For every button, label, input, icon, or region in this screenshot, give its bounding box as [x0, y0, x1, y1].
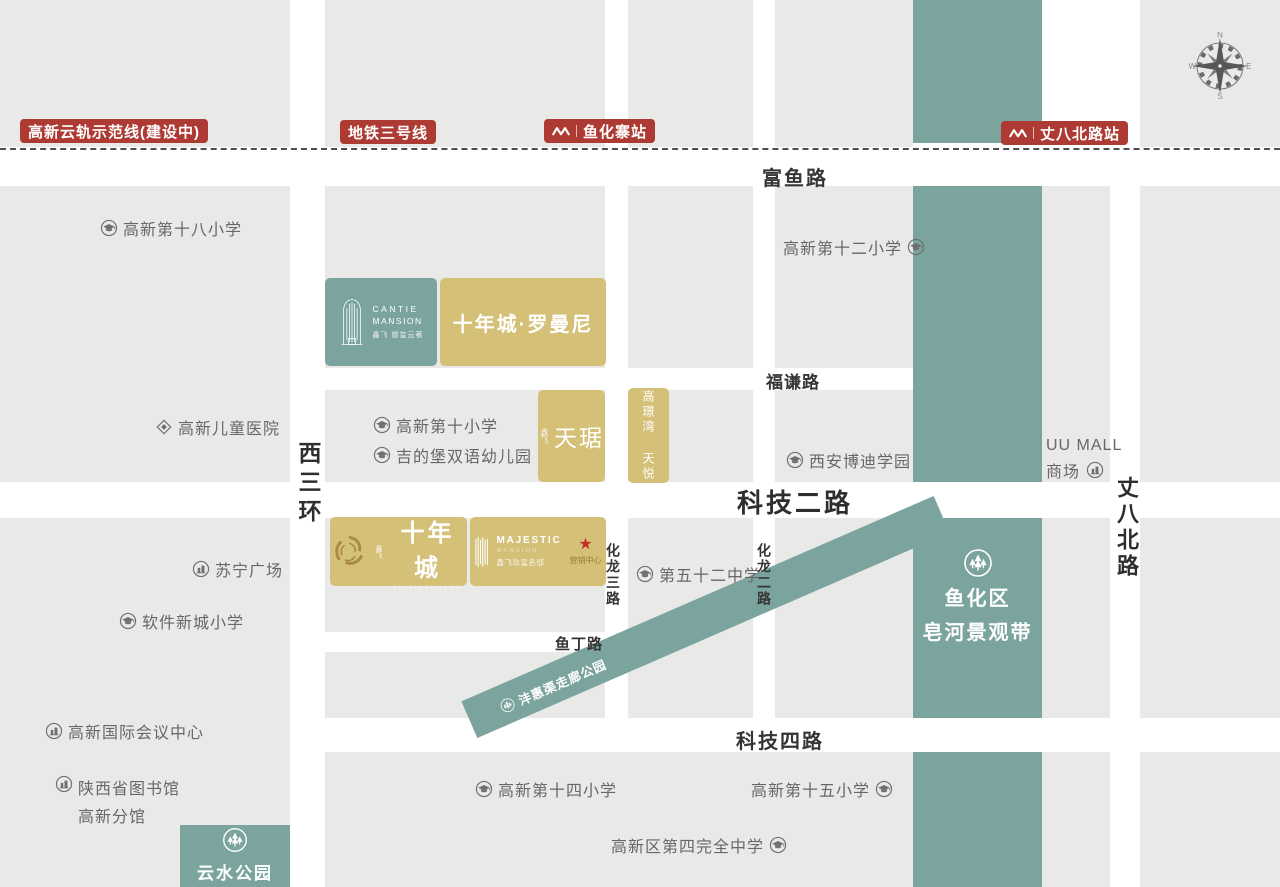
city-block — [1140, 752, 1280, 887]
landmark-library: 陕西省图书馆 高新分馆 — [55, 775, 180, 827]
school-icon — [769, 836, 787, 854]
landmark-gaoxin10: 高新第十小学 — [373, 413, 498, 437]
river-landscape-band — [913, 186, 1042, 482]
project-label: 高璟湾 天悦 — [640, 390, 657, 482]
project-romanni: 十年城·罗曼尼 — [440, 278, 606, 366]
landmark-ruanjian: 软件新城小学 — [119, 609, 244, 633]
metro-logo-icon — [552, 125, 577, 137]
badge-station-zhangbabei: 丈八北路站 — [1001, 121, 1128, 145]
project-prefix: 鑫飞 — [373, 545, 383, 559]
sales-center-label: 营销中心 — [569, 555, 601, 566]
landmark-gaoxin12: 高新第十二小学 — [783, 235, 925, 259]
city-block — [1140, 518, 1280, 718]
landmark-label: 高新国际会议中心 — [68, 719, 204, 743]
park-icon — [222, 827, 248, 853]
badge-label: 鱼化寨站 — [583, 121, 647, 142]
project-label: 鑫飞 御玺云著 — [373, 330, 424, 340]
road-label-fuyu: 富鱼路 — [762, 162, 828, 191]
school-icon — [119, 612, 137, 630]
sales-center-star-icon: ★ — [569, 537, 601, 553]
road-label-yuding: 鱼丁路 — [555, 633, 603, 654]
project-label: MAJESTIC — [497, 535, 562, 546]
arch-building-icon — [339, 297, 365, 347]
mall-icon — [1086, 461, 1104, 479]
landmark-label: 高新第十二小学 — [783, 235, 902, 259]
vertical-lines-icon — [475, 535, 489, 569]
school-icon — [100, 219, 118, 237]
project-cantie-mansion: CANTIE MANSION 鑫飞 御玺云著 — [325, 278, 437, 366]
project-label: 十年城·罗曼尼 — [453, 308, 594, 337]
landmark-label: 高新第十小学 — [396, 413, 498, 437]
project-sublabel: MANSION — [497, 548, 562, 554]
building-icon — [45, 722, 63, 740]
badge-metro-line3: 地铁三号线 — [340, 120, 436, 144]
project-tianyue: 高璟湾 天悦 — [628, 388, 669, 483]
landmark-label: 高新第十四小学 — [498, 777, 617, 801]
project-label: MANSION — [373, 316, 424, 326]
building-icon — [55, 775, 73, 793]
school-icon — [636, 565, 654, 583]
road-label-zhangbabei: 丈八北路 — [1110, 476, 1142, 580]
landmark-ertong-hospital: 高新儿童医院 — [155, 415, 280, 439]
park-icon — [497, 695, 517, 715]
project-label: 天琚 — [554, 419, 604, 453]
project-label: 鑫飞玖玺名邸 — [497, 557, 562, 568]
school-icon — [373, 446, 391, 464]
landmark-label: 商场 — [1046, 458, 1080, 482]
school-icon — [786, 451, 804, 469]
road-label-fuqian: 福谦路 — [766, 368, 820, 393]
landmark-label: 高新分馆 — [78, 803, 180, 827]
landmark-label: 第五十二中学 — [659, 562, 761, 586]
compass-s: S — [1217, 92, 1222, 100]
landmark-label: 苏宁广场 — [215, 557, 283, 581]
compass-w: W — [1189, 62, 1197, 71]
city-block — [325, 752, 913, 887]
badge-label: 高新云轨示范线(建设中) — [28, 121, 200, 142]
landmark-gaoxin18: 高新第十八小学 — [100, 216, 242, 240]
school-icon — [373, 416, 391, 434]
city-block — [628, 186, 753, 368]
project-tianju: 鑫飞 天琚 — [538, 390, 605, 482]
project-label: CANTIE — [373, 304, 424, 314]
school-icon — [875, 780, 893, 798]
landmark-uu-mall: UU MALL 商场 — [1046, 437, 1122, 482]
school-icon — [907, 238, 925, 256]
project-prefix: 鑫飞 — [539, 428, 550, 444]
landmark-gaoxin15: 高新第十五小学 — [751, 777, 893, 801]
river-landscape-band — [913, 752, 1042, 887]
city-block — [775, 186, 913, 368]
park-icon — [913, 548, 1042, 578]
project-shiniancheng: 鑫飞 十年城 SHINIANCHENG — [330, 517, 467, 586]
phoenix-swirl-icon — [330, 533, 368, 571]
badge-label: 丈八北路站 — [1040, 123, 1120, 144]
project-sublabel: SHINIANCHENG — [388, 585, 467, 591]
landmark-gaoxin14: 高新第十四小学 — [475, 777, 617, 801]
badge-label: 地铁三号线 — [348, 122, 428, 143]
metro-dashed-line — [0, 148, 1280, 150]
road-label-xisanhuan: 西三环 — [291, 441, 325, 528]
metro-logo-icon — [1009, 127, 1034, 139]
city-block — [1042, 518, 1110, 718]
project-label: 十年城 — [388, 513, 467, 583]
badge-station-yuhuazhai: 鱼化寨站 — [544, 119, 655, 143]
compass-rose-icon: N S W E — [1186, 32, 1254, 100]
location-map: 高新云轨示范线(建设中) 地铁三号线 鱼化寨站 丈八北路站 富鱼路 福谦路 科技… — [0, 0, 1280, 887]
city-block — [775, 0, 913, 147]
road-label-keji2: 科技二路 — [737, 483, 853, 520]
landmark-label: 西安博迪学园 — [809, 448, 911, 472]
landmark-conference: 高新国际会议中心 — [45, 719, 204, 743]
yunshui-park-block: 云水公园 — [180, 825, 290, 887]
landmark-label: 陕西省图书馆 — [78, 775, 180, 799]
yunshui-label: 云水公园 — [180, 859, 290, 884]
compass-n: N — [1217, 32, 1223, 40]
landmark-bodi: 西安博迪学园 — [786, 448, 911, 472]
landmark-label: 软件新城小学 — [142, 609, 244, 633]
landmark-jidibao: 吉的堡双语幼儿园 — [373, 443, 532, 467]
landmark-label: 高新儿童医院 — [178, 415, 280, 439]
road-label-keji4: 科技四路 — [736, 725, 824, 754]
river-belt-label: 鱼化区 皂河景观带 — [913, 548, 1042, 645]
landmark-label: 高新区第四完全中学 — [611, 833, 764, 857]
city-block — [1140, 186, 1280, 482]
landmark-label: 吉的堡双语幼儿园 — [396, 443, 532, 467]
road-label-hualong3: 化龙三路 — [603, 543, 623, 607]
landmark-label: UU MALL — [1046, 437, 1122, 455]
landmark-suning: 苏宁广场 — [192, 557, 283, 581]
landmark-label: 高新第十八小学 — [123, 216, 242, 240]
badge-cloud-rail: 高新云轨示范线(建设中) — [20, 119, 208, 143]
compass-e: E — [1246, 62, 1251, 71]
river-belt-line1: 鱼化区 — [913, 582, 1042, 611]
building-icon — [192, 560, 210, 578]
school-icon — [475, 780, 493, 798]
hospital-icon — [155, 418, 173, 436]
river-belt-line2: 皂河景观带 — [913, 616, 1042, 645]
landmark-label: 高新第十五小学 — [751, 777, 870, 801]
landmark-no52: 第五十二中学 — [636, 562, 761, 586]
city-block — [1042, 752, 1110, 887]
landmark-no4-middle: 高新区第四完全中学 — [611, 833, 787, 857]
project-majestic: MAJESTIC MANSION 鑫飞玖玺名邸 ★ 营销中心 — [470, 517, 606, 586]
